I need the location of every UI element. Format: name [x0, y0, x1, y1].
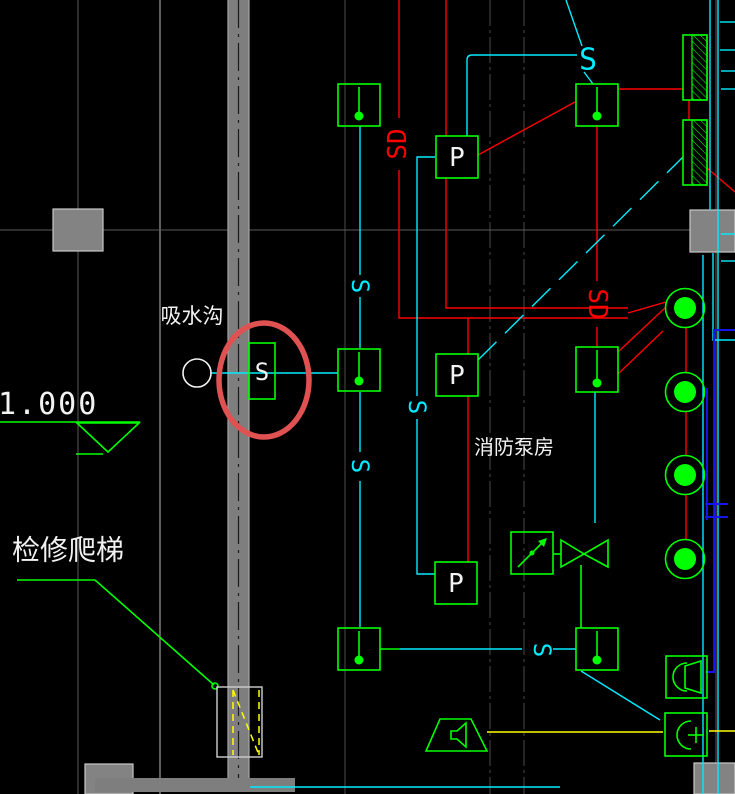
column: [694, 763, 735, 794]
hose-cabinet-symbol: [683, 120, 707, 185]
smoke-line-label: SD: [582, 288, 612, 319]
flow-switch-symbol: [511, 532, 553, 574]
pipe-segment: [618, 307, 666, 352]
pipe-segment: [566, 0, 582, 46]
pipe-segment: [581, 671, 660, 720]
pump-circle-symbol: [183, 359, 211, 387]
signal-line-label: S: [528, 643, 556, 657]
cyan-signal-lines: S S S S S: [211, 0, 735, 794]
pressure-switch-symbol: P: [436, 136, 478, 178]
elevation-marker: [0, 422, 140, 454]
plan-drawing: SD SD S S S S S: [0, 0, 735, 794]
pressure-switch-label: P: [448, 569, 464, 599]
label-maintenance-ladder: 检修爬梯: [12, 534, 124, 567]
signal-line-label: S: [403, 400, 431, 414]
hydrant-button-symbol: [665, 713, 707, 756]
pressure-switch-symbol: P: [435, 562, 477, 604]
pipe-segment-dashed: [478, 157, 683, 360]
detector-symbol: [576, 347, 618, 392]
butterfly-valve-symbol: [553, 540, 608, 628]
pipe-segment: [417, 419, 435, 574]
elevation-value: 1.000: [0, 387, 98, 422]
pipe-segment: [478, 102, 575, 155]
alarm-bell-symbol: [666, 656, 707, 698]
signal-line-label: S: [346, 279, 374, 293]
label-fire-pump-room: 消防泵房: [474, 435, 554, 459]
indicator-light: [666, 540, 705, 579]
pipe-segment: [628, 302, 666, 313]
pressure-switch-label: P: [449, 143, 465, 173]
grid-lines: [0, 0, 735, 794]
green-devices: P P P S: [0, 35, 707, 756]
blue-pipes: [705, 330, 735, 672]
pressure-switch-label: P: [449, 361, 465, 391]
detector-symbol: [338, 84, 380, 126]
s-device-symbol: S: [249, 343, 275, 399]
speaker-symbol: [426, 719, 487, 751]
s-device-label: S: [255, 358, 269, 386]
column: [53, 209, 103, 251]
leader-line: [17, 580, 218, 689]
smoke-line-label: SD: [383, 128, 413, 159]
column: [690, 210, 735, 252]
pipe-segment: [707, 168, 735, 192]
detector-symbol: [576, 628, 618, 670]
detector-symbol: [576, 84, 618, 126]
hose-cabinet-symbol: [683, 35, 707, 100]
signal-line-label: S: [579, 43, 597, 78]
signal-line-label: S: [346, 459, 374, 473]
indicator-light: [666, 373, 705, 412]
indicator-light: [666, 289, 705, 328]
pipe-segment: [618, 331, 663, 374]
indicator-light: [666, 456, 705, 495]
label-suction-ditch: 吸水沟: [161, 304, 224, 328]
walls: [53, 0, 735, 794]
pressure-switch-symbol: P: [436, 354, 478, 396]
wall-strip-bottom: [95, 778, 295, 792]
detector-symbol: [338, 628, 380, 670]
detector-symbol: [338, 349, 380, 391]
pipe-segment: [705, 330, 735, 672]
cad-canvas: SD SD S S S S S: [0, 0, 735, 794]
pipe-segment: [417, 157, 435, 396]
pipe-segment: [467, 55, 577, 136]
